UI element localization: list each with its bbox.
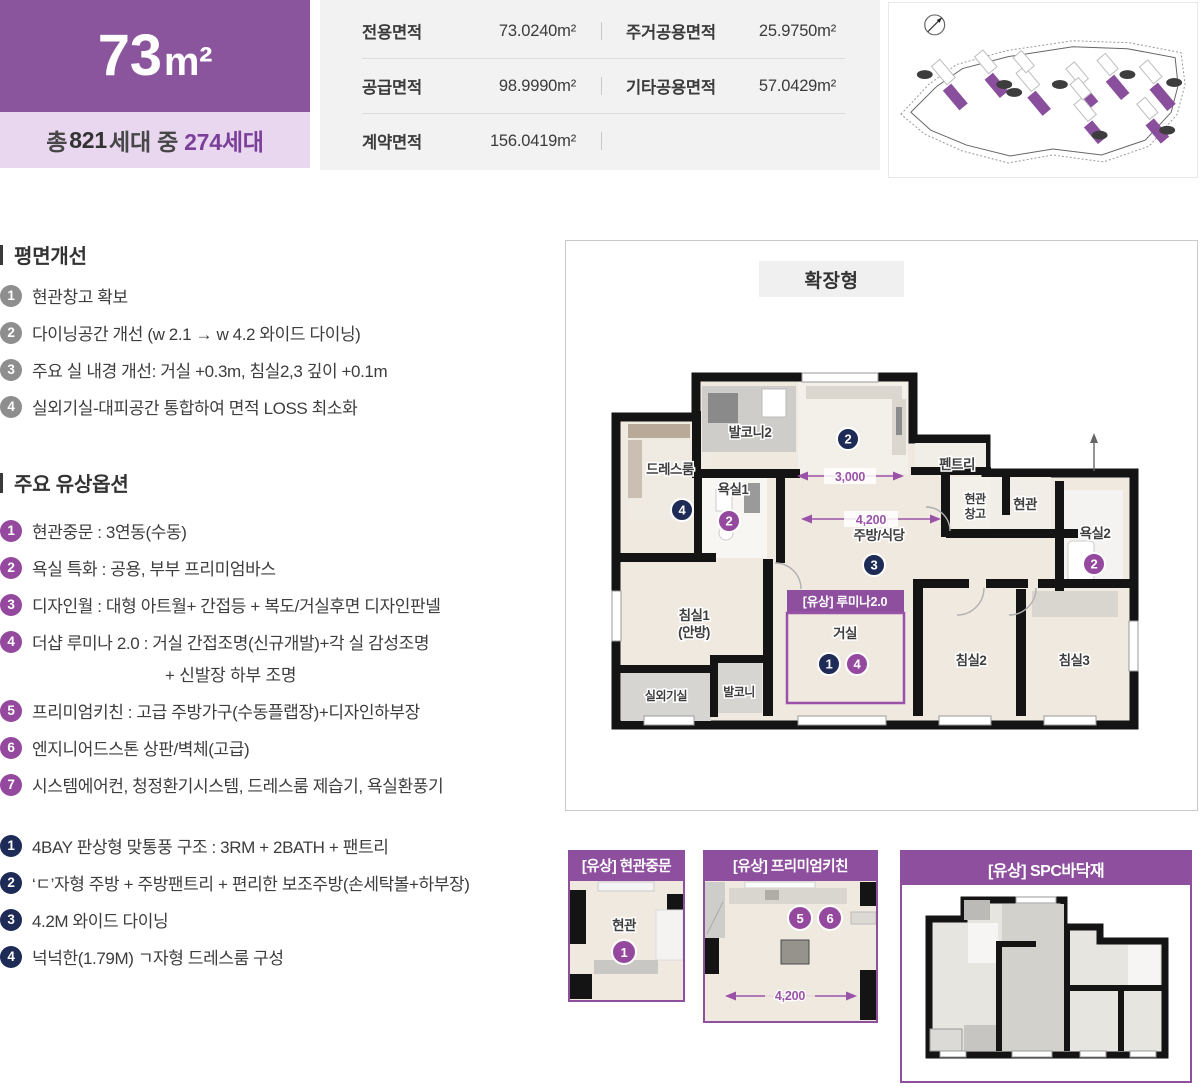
item-number-badge: 7 (0, 774, 22, 796)
item-text: 현관중문 : 3연동(수동) (32, 518, 186, 543)
item-number-badge: 6 (0, 737, 22, 759)
kitchen-appliance (896, 407, 902, 435)
list-item: 3디자인월 : 대형 아트월+ 간접등 + 복도/거실후면 디자인판넬 (0, 592, 565, 617)
svg-text:4: 4 (678, 503, 686, 518)
area-label: 공급면적 (362, 74, 458, 98)
total-prefix: 총 (46, 123, 67, 157)
shaft-box (708, 393, 738, 423)
svg-text:2: 2 (1090, 557, 1097, 572)
item-number-badge: 4 (0, 631, 22, 653)
list-item: 7시스템에어컨, 청정환기시스템, 드레스룸 제습기, 욕실환풍기 (0, 772, 565, 797)
option-card-title: [유상] SPC바닥재 (902, 852, 1190, 885)
kitchen-counter (729, 888, 847, 904)
dressroom-closet (628, 424, 690, 438)
unit-size-unit: m² (164, 40, 213, 85)
area-label: 주거공용면적 (626, 19, 738, 43)
option-card-title: [유상] 현관중문 (568, 850, 685, 881)
item-text: 넉넉한(1.79M) ㄱ자형 드레스룸 구성 (32, 944, 284, 969)
area-row: 공급면적 98.9990m² 기타공용면적 57.0429m² (362, 59, 845, 114)
svg-text:주방/식당: 주방/식당 (854, 527, 906, 543)
svg-text:2: 2 (725, 514, 732, 529)
brochure-page: 73 m² 총 821 세대 중 274세대 전용면적 73.0240m² 주거… (0, 0, 1200, 1086)
option-card-image: 5 6 4,200 (703, 881, 878, 1023)
option-card-entry-door: [유상] 현관중문 현관 1 (568, 850, 685, 1002)
list-item: 4넉넉한(1.79M) ㄱ자형 드레스룸 구성 (0, 944, 565, 969)
svg-text:(안방): (안방) (678, 624, 710, 640)
section-title-plan-improvements: 평면개선 (0, 240, 87, 269)
variant-label: 확장형 (759, 261, 904, 297)
item-text: 프리미엄키친 : 고급 주방가구(수동플랩장)+디자인하부장 (32, 698, 420, 723)
plan-improvements-list: 1현관창고 확보2다이닝공간 개선 (w 2.1 → w 4.2 와이드 다이닝… (0, 283, 560, 431)
svg-text:욕실1: 욕실1 (718, 482, 750, 497)
item-text: ‘ㄷ’자형 주방 + 주방팬트리 + 편리한 보조주방(손세탁볼+하부장) (32, 870, 470, 895)
list-item: 1현관창고 확보 (0, 283, 560, 308)
total-count: 821 (69, 127, 107, 154)
item-text: 실외기실-대피공간 통합하여 면적 LOSS 최소화 (32, 394, 357, 419)
item-text: 4BAY 판상형 맞통풍 구조 : 3RM + 2BATH + 팬트리 (32, 833, 388, 858)
area-value: 57.0429m² (738, 77, 836, 96)
floorplan-svg: 3,000 4,200 [유상] 루미나2.0 발코니2 드레스룸 욕실1 주방… (566, 241, 1197, 810)
area-label: 전용면적 (362, 19, 458, 43)
column-divider (601, 77, 602, 95)
list-item: 5프리미엄키친 : 고급 주방가구(수동플랩장)+디자인하부장 (0, 698, 565, 723)
balcony2-sink (762, 389, 786, 417)
svg-text:1: 1 (620, 945, 627, 960)
item-number-badge: 2 (0, 872, 22, 894)
area-value: 25.9750m² (738, 22, 836, 41)
site-plan-map (888, 2, 1198, 178)
option-card-spc-flooring: [유상] SPC바닥재 (900, 850, 1192, 1083)
svg-text:펜트리: 펜트리 (939, 457, 975, 472)
svg-text:거실: 거실 (833, 626, 857, 641)
unit-count-line: 총 821 세대 중 274세대 (0, 112, 310, 168)
item-text: 엔지니어드스톤 상판/벽체(고급) (32, 735, 249, 760)
item-number-badge: 4 (0, 946, 22, 968)
area-value: 156.0419m² (458, 132, 576, 151)
item-text: 디자인월 : 대형 아트월+ 간접등 + 복도/거실후면 디자인판넬 (32, 592, 440, 617)
title-bar (0, 245, 3, 265)
unit-size-badge: 73 m² (0, 0, 310, 112)
svg-text:3,000: 3,000 (835, 470, 866, 484)
item-number-badge: 1 (0, 835, 22, 857)
option-card-image (902, 885, 1190, 1081)
list-item: 2‘ㄷ’자형 주방 + 주방팬트리 + 편리한 보조주방(손세탁볼+하부장) (0, 870, 565, 895)
kitchen-counter (806, 386, 902, 399)
svg-text:현관: 현관 (964, 491, 986, 506)
list-item: 2다이닝공간 개선 (w 2.1 → w 4.2 와이드 다이닝) (0, 320, 560, 345)
svg-text:실외기실: 실외기실 (645, 688, 688, 703)
area-row: 전용면적 73.0240m² 주거공용면적 25.9750m² (362, 4, 845, 59)
svg-text:침실3: 침실3 (1059, 653, 1091, 668)
svg-text:현관: 현관 (1013, 496, 1038, 512)
kitchen-island (781, 940, 809, 964)
section-title-text: 평면개선 (14, 240, 87, 269)
list-item: 34.2M 와이드 다이닝 (0, 907, 565, 932)
unit-size-number: 73 (98, 0, 162, 112)
list-item: 4더샵 루미나 2.0 : 거실 간접조명(신규개발)+각 실 감성조명 (0, 629, 565, 654)
svg-text:발코니2: 발코니2 (729, 424, 772, 440)
svg-text:4,200: 4,200 (856, 513, 887, 527)
svg-text:현관: 현관 (612, 917, 637, 933)
type-count: 274세대 (184, 123, 264, 157)
svg-text:4: 4 (853, 657, 861, 672)
floorplan-panel: 확장형 (565, 240, 1198, 811)
title-bar (0, 473, 3, 493)
list-item: 1현관중문 : 3연동(수동) (0, 518, 565, 543)
column-divider (601, 22, 602, 40)
item-number-badge: 3 (0, 359, 22, 381)
item-text-continued: + 신발장 하부 조명 (0, 661, 565, 686)
svg-text:4,200: 4,200 (775, 989, 806, 1003)
list-item: 6엔지니어드스톤 상판/벽체(고급) (0, 735, 565, 760)
list-item: 2욕실 특화 : 공용, 부부 프리미엄바스 (0, 555, 565, 580)
item-number-badge: 2 (0, 322, 22, 344)
item-number-badge: 1 (0, 520, 22, 542)
option-card-title: [유상] 프리미엄키친 (703, 850, 878, 881)
svg-text:2: 2 (844, 432, 851, 447)
svg-text:1: 1 (825, 657, 832, 672)
north-arrow-icon (1090, 433, 1098, 471)
item-text: 더샵 루미나 2.0 : 거실 간접조명(신규개발)+각 실 감성조명 (32, 629, 429, 654)
item-number-badge: 3 (0, 909, 22, 931)
item-number-badge: 5 (0, 700, 22, 722)
area-value: 73.0240m² (458, 22, 576, 41)
item-text: 현관창고 확보 (32, 283, 128, 308)
svg-text:욕실2: 욕실2 (1080, 526, 1111, 541)
svg-text:발코니: 발코니 (723, 684, 755, 699)
column-divider (601, 132, 602, 150)
paid-options-list: 1현관중문 : 3연동(수동)2욕실 특화 : 공용, 부부 프리미엄바스3디자… (0, 518, 565, 809)
list-item: 14BAY 판상형 맞통풍 구조 : 3RM + 2BATH + 팬트리 (0, 833, 565, 858)
svg-text:침실2: 침실2 (956, 653, 987, 668)
option-card-premium-kitchen: [유상] 프리미엄키친 5 6 4,200 (703, 850, 878, 1023)
item-text: 다이닝공간 개선 (w 2.1 → w 4.2 와이드 다이닝) (32, 320, 360, 345)
section-title-text: 주요 유상옵션 (14, 468, 129, 497)
bed3-closet (1032, 591, 1118, 617)
compass-icon (925, 15, 945, 35)
svg-text:5: 5 (796, 911, 803, 926)
option-card-image: 현관 1 (568, 881, 685, 1002)
item-text: 욕실 특화 : 공용, 부부 프리미엄바스 (32, 555, 276, 580)
area-row: 계약면적 156.0419m² (362, 114, 845, 168)
svg-text:[유상] 루미나2.0: [유상] 루미나2.0 (803, 594, 888, 609)
area-label: 계약면적 (362, 129, 458, 153)
list-item: 3주요 실 내경 개선: 거실 +0.3m, 침실2,3 깊이 +0.1m (0, 357, 560, 382)
area-value: 98.9990m² (458, 77, 576, 96)
svg-text:창고: 창고 (964, 506, 986, 521)
item-text: 4.2M 와이드 다이닝 (32, 907, 168, 932)
svg-text:드레스룸: 드레스룸 (646, 462, 695, 477)
total-mid: 세대 중 (109, 123, 178, 157)
svg-text:6: 6 (826, 911, 833, 926)
dressroom-closet-side (628, 440, 642, 498)
area-label: 기타공용면적 (626, 74, 738, 98)
item-number-badge: 4 (0, 396, 22, 418)
item-text: 주요 실 내경 개선: 거실 +0.3m, 침실2,3 깊이 +0.1m (32, 357, 387, 382)
structure-features-list: 14BAY 판상형 맞통풍 구조 : 3RM + 2BATH + 팬트리2‘ㄷ’… (0, 833, 565, 981)
section-title-paid-options: 주요 유상옵션 (0, 468, 129, 497)
entry-door-band (598, 882, 654, 891)
item-number-badge: 1 (0, 285, 22, 307)
svg-text:3: 3 (870, 558, 877, 573)
area-table: 전용면적 73.0240m² 주거공용면적 25.9750m² 공급면적 98.… (320, 0, 880, 170)
item-number-badge: 3 (0, 594, 22, 616)
site-plan-svg (889, 3, 1197, 178)
item-number-badge: 2 (0, 557, 22, 579)
svg-text:침실1: 침실1 (679, 608, 711, 623)
list-item: 4실외기실-대피공간 통합하여 면적 LOSS 최소화 (0, 394, 560, 419)
item-text: 시스템에어컨, 청정환기시스템, 드레스룸 제습기, 욕실환풍기 (32, 772, 443, 797)
